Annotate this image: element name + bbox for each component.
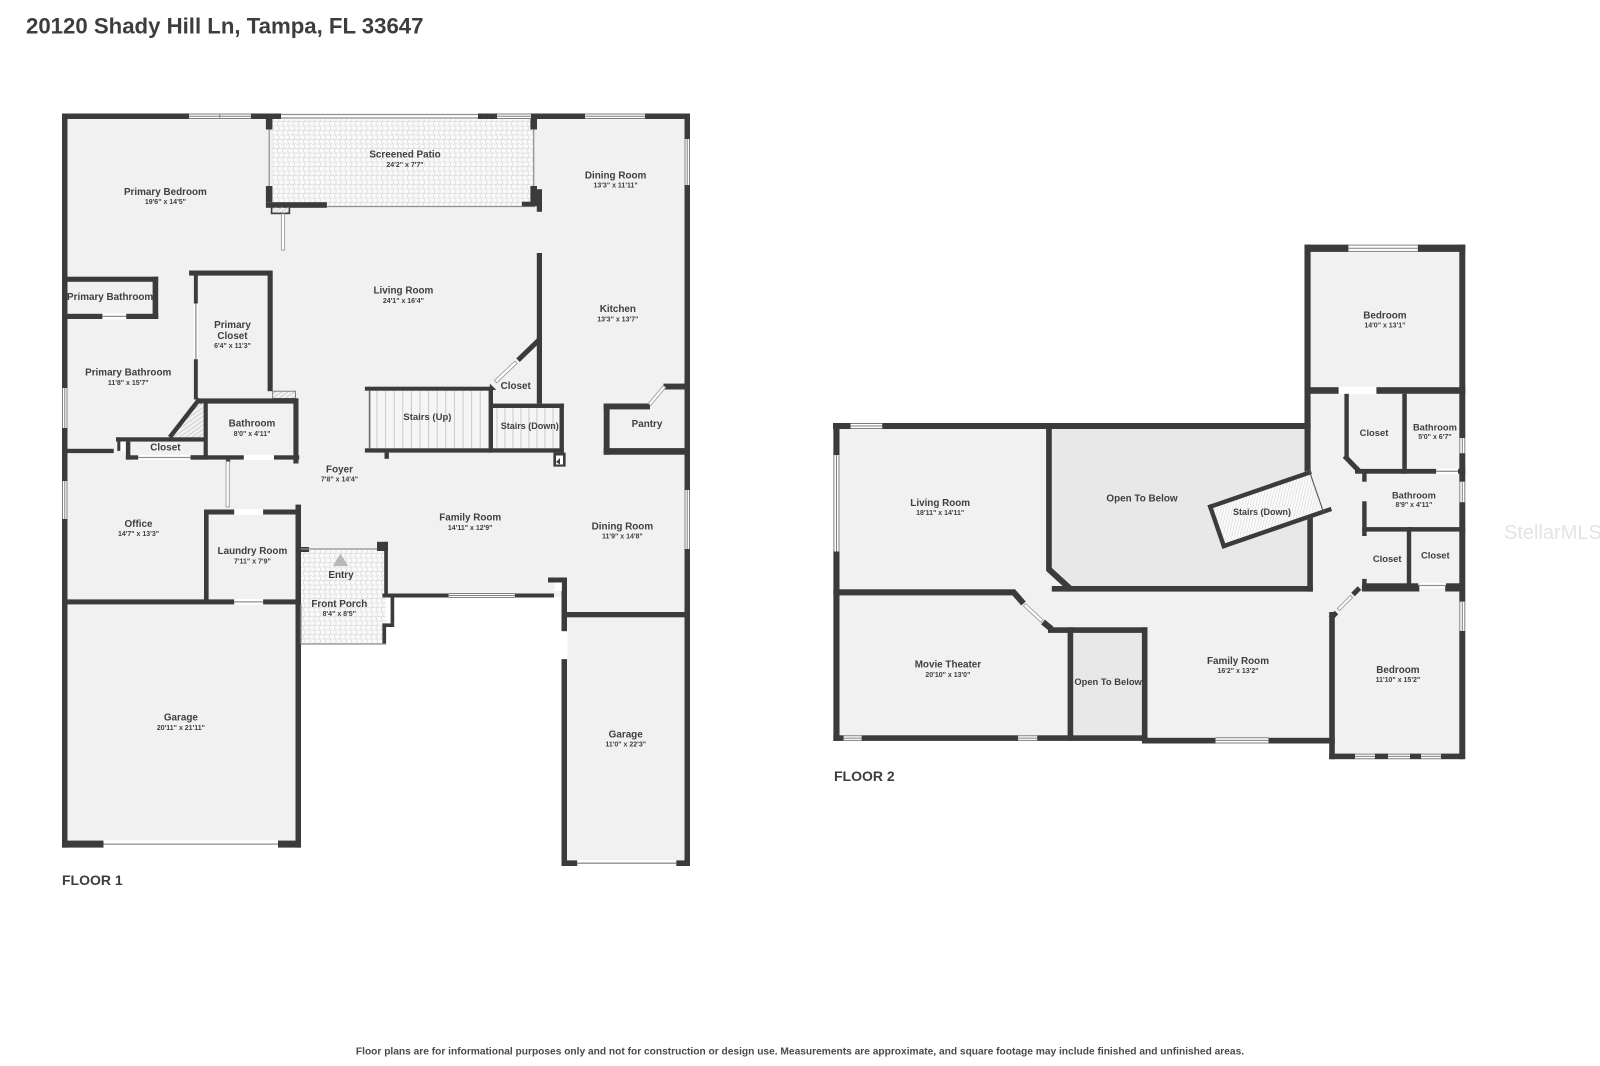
svg-text:Entry: Entry [328, 570, 354, 581]
svg-text:20'11" x 21'11": 20'11" x 21'11" [157, 725, 205, 732]
svg-text:24'1" x 16'4": 24'1" x 16'4" [383, 298, 424, 305]
svg-text:Stairs (Up): Stairs (Up) [403, 412, 451, 423]
svg-text:Office: Office [125, 519, 153, 530]
svg-text:11'0" x 22'3": 11'0" x 22'3" [605, 742, 646, 749]
svg-text:Stairs (Down): Stairs (Down) [501, 421, 559, 431]
svg-text:Dining Room: Dining Room [585, 170, 647, 181]
svg-text:FLOOR 2: FLOOR 2 [834, 768, 895, 784]
svg-text:Living Room: Living Room [374, 286, 434, 297]
svg-text:Primary Bathroom: Primary Bathroom [85, 368, 171, 379]
svg-text:19'6" x 14'5": 19'6" x 14'5" [145, 199, 186, 206]
svg-text:Open To Below: Open To Below [1106, 494, 1177, 505]
svg-text:16'2" x 13'2": 16'2" x 13'2" [1217, 668, 1258, 675]
svg-text:FLOOR 1: FLOOR 1 [62, 872, 123, 888]
svg-text:24'2" x 7'7": 24'2" x 7'7" [386, 162, 423, 169]
svg-text:Closet: Closet [1373, 553, 1402, 564]
svg-text:Closet: Closet [217, 331, 248, 342]
svg-text:Bedroom: Bedroom [1376, 665, 1420, 676]
svg-text:8'4" x 8'5": 8'4" x 8'5" [323, 611, 356, 618]
svg-text:13'3" x 11'11": 13'3" x 11'11" [593, 183, 637, 190]
svg-text:Closet: Closet [501, 381, 532, 392]
svg-text:14'11" x 12'9": 14'11" x 12'9" [448, 525, 493, 532]
svg-text:Movie Theater: Movie Theater [915, 660, 982, 671]
svg-text:Pantry: Pantry [632, 419, 663, 430]
svg-text:Floor plans are for informatio: Floor plans are for informational purpos… [356, 1047, 1244, 1058]
svg-text:Stairs (Down): Stairs (Down) [1233, 507, 1291, 517]
svg-text:7'11" x 7'9": 7'11" x 7'9" [234, 558, 271, 565]
svg-text:Primary Bedroom: Primary Bedroom [124, 187, 207, 198]
svg-text:20'10" x 13'0": 20'10" x 13'0" [925, 672, 970, 679]
svg-text:5'0" x 6'7": 5'0" x 6'7" [1418, 434, 1451, 441]
svg-text:Family Room: Family Room [1207, 656, 1269, 667]
svg-text:18'11" x 14'11": 18'11" x 14'11" [916, 510, 964, 517]
svg-text:Closet: Closet [1421, 549, 1450, 560]
svg-text:Bathroom: Bathroom [229, 419, 276, 430]
svg-text:Bedroom: Bedroom [1363, 310, 1407, 321]
svg-text:Dining Room: Dining Room [592, 521, 654, 532]
svg-text:11'8" x 15'7": 11'8" x 15'7" [108, 380, 149, 387]
svg-text:8'9" x 4'11": 8'9" x 4'11" [1395, 502, 1432, 509]
svg-text:11'9" x 14'8": 11'9" x 14'8" [602, 534, 643, 541]
svg-text:Garage: Garage [609, 729, 644, 740]
svg-text:13'3" x 13'7": 13'3" x 13'7" [597, 317, 638, 324]
svg-text:Primary: Primary [214, 320, 251, 331]
svg-text:14'0" x 13'1": 14'0" x 13'1" [1364, 323, 1405, 330]
svg-text:14'7" x 13'3": 14'7" x 13'3" [118, 531, 159, 538]
svg-text:8'0" x 4'11": 8'0" x 4'11" [234, 431, 271, 438]
svg-text:Closet: Closet [1360, 427, 1389, 438]
svg-text:StellarMLS: StellarMLS [1504, 522, 1600, 544]
svg-text:11'10" x 15'2": 11'10" x 15'2" [1376, 677, 1421, 684]
svg-text:Open To Below: Open To Below [1074, 676, 1142, 687]
svg-text:Family Room: Family Room [439, 513, 501, 524]
svg-text:20120 Shady Hill Ln, Tampa, FL: 20120 Shady Hill Ln, Tampa, FL 33647 [26, 13, 424, 38]
svg-text:Living Room: Living Room [910, 498, 970, 509]
svg-text:Garage: Garage [164, 713, 199, 724]
svg-text:Bathroom: Bathroom [1392, 490, 1436, 500]
svg-text:Kitchen: Kitchen [600, 304, 636, 315]
svg-text:Bathroom: Bathroom [1413, 422, 1457, 432]
svg-text:Laundry Room: Laundry Room [218, 546, 288, 557]
svg-text:Primary Bathroom: Primary Bathroom [67, 292, 153, 303]
svg-text:Foyer: Foyer [326, 464, 353, 475]
svg-text:Closet: Closet [150, 443, 181, 454]
svg-text:Front Porch: Front Porch [311, 599, 367, 610]
svg-text:7'8" x 14'4": 7'8" x 14'4" [321, 477, 358, 484]
svg-text:Screened Patio: Screened Patio [369, 150, 440, 161]
svg-text:6'4" x 11'3": 6'4" x 11'3" [214, 343, 251, 350]
